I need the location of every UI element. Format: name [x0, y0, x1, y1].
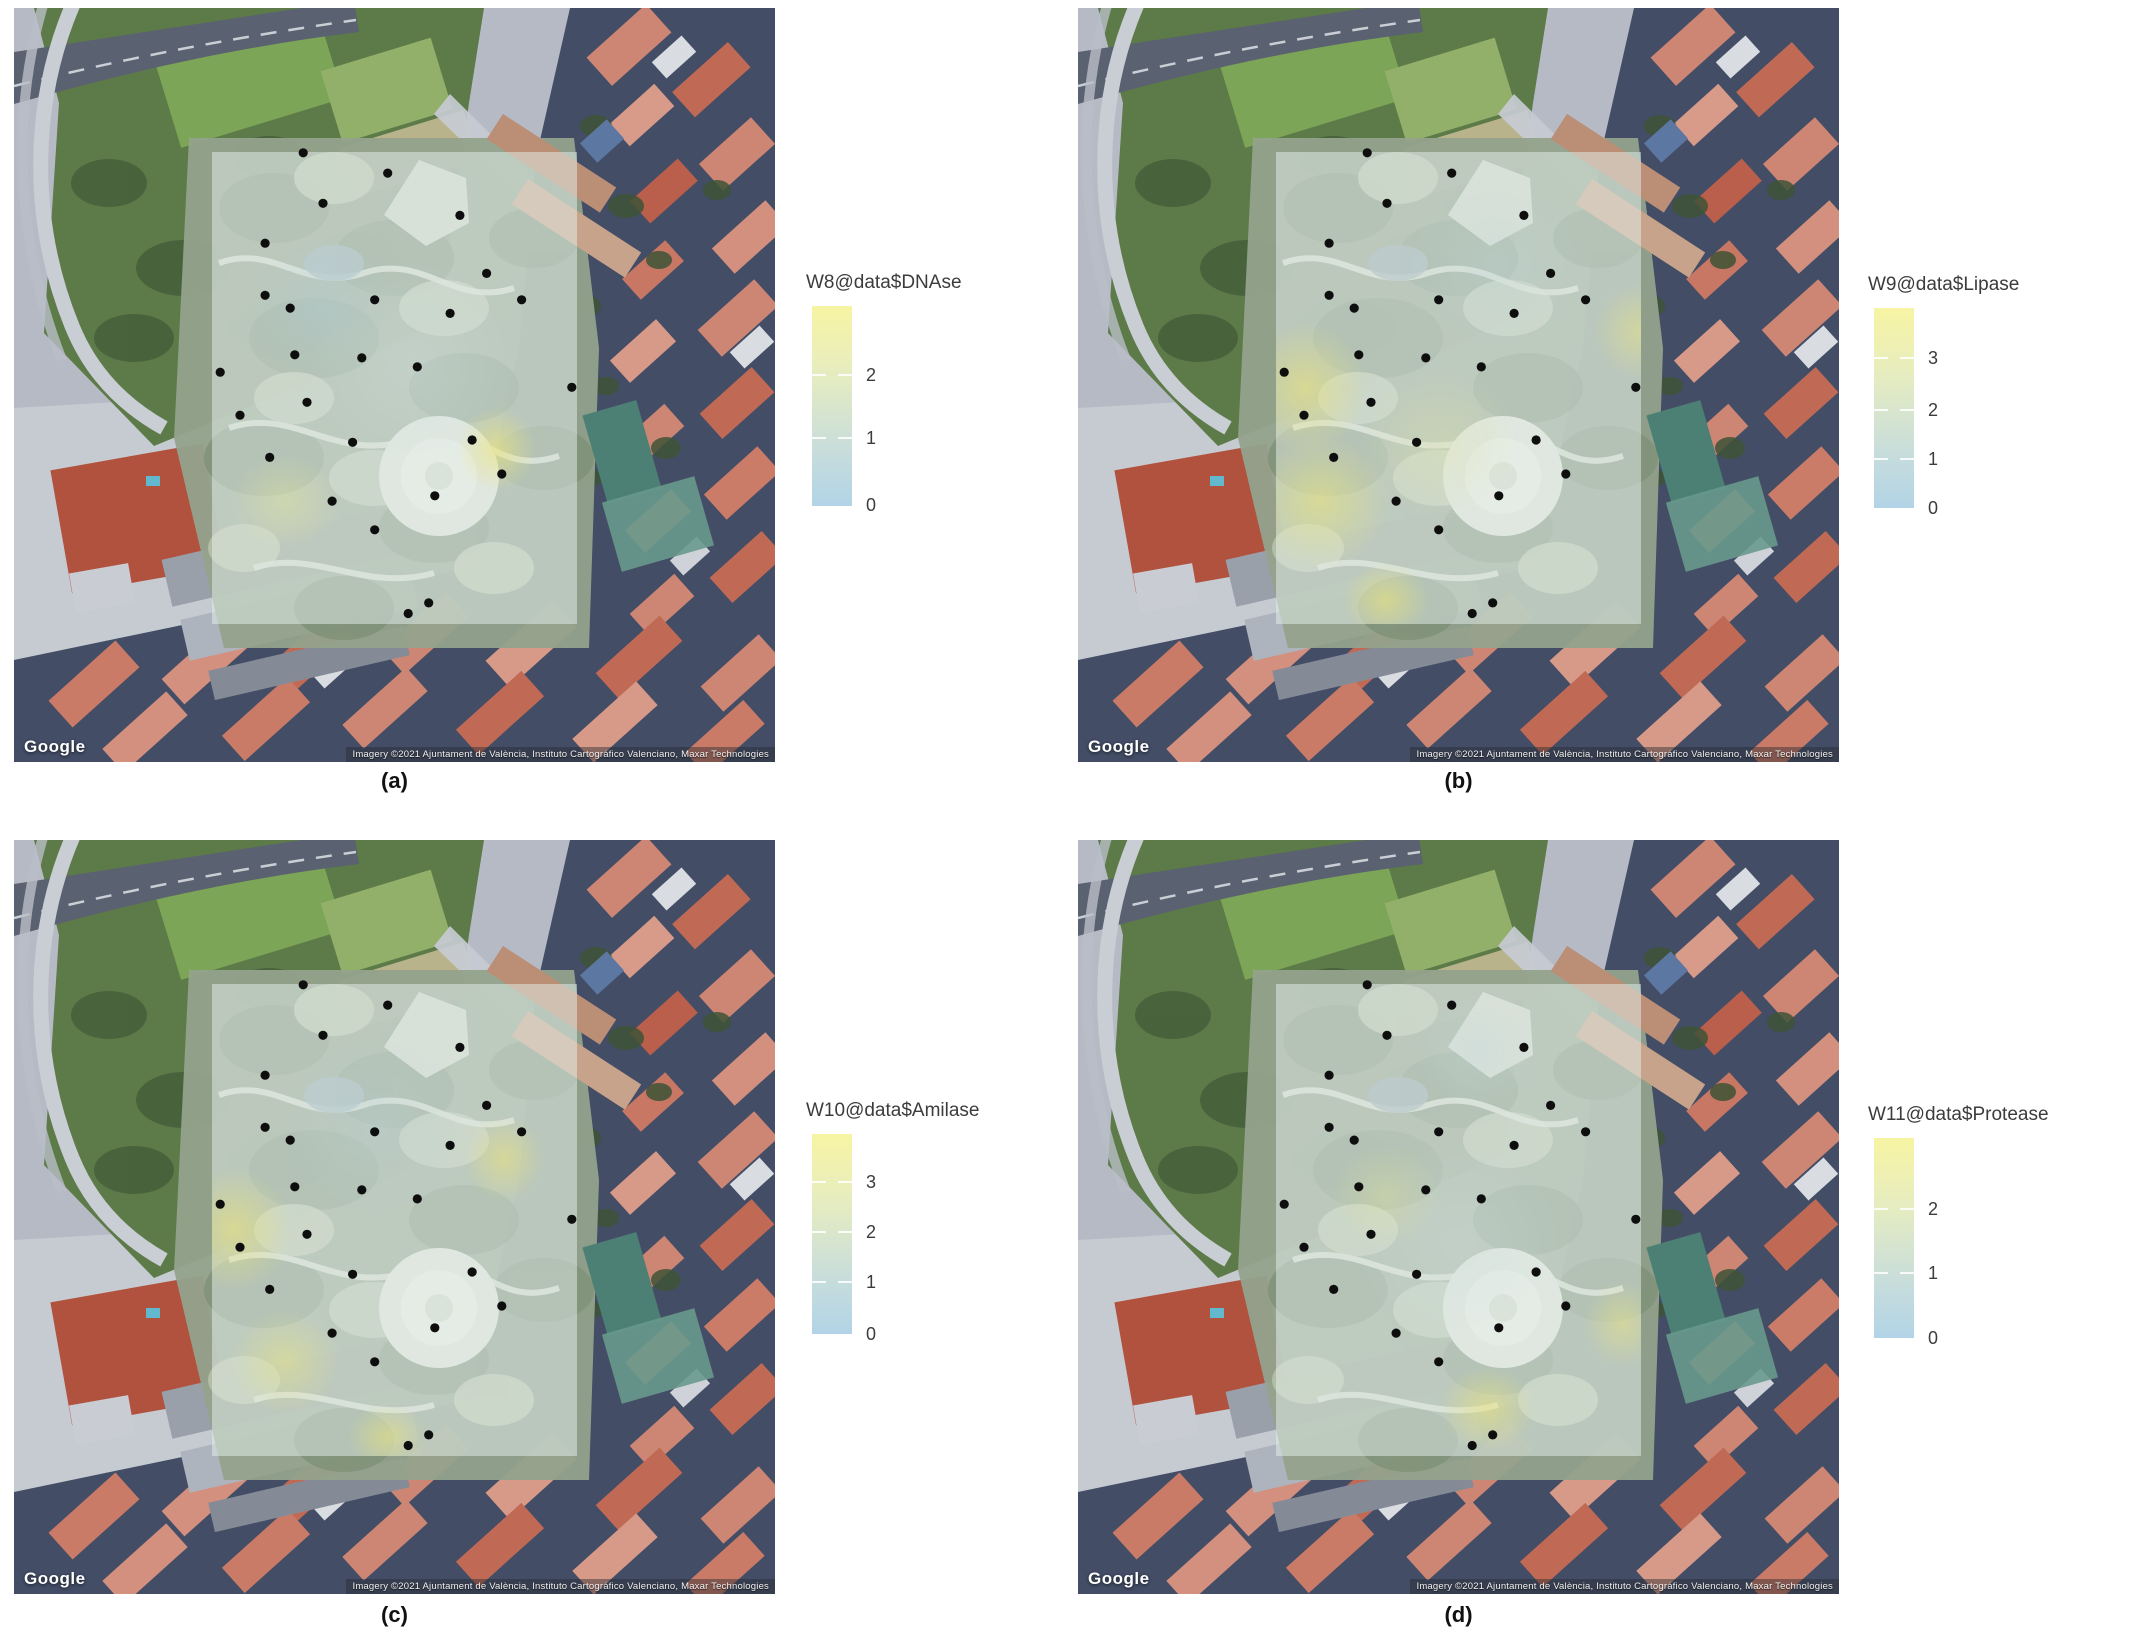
- sample-point: [1299, 1243, 1308, 1252]
- sample-point: [1280, 1200, 1289, 1209]
- sample-point: [446, 309, 455, 318]
- panel-label-d: (d): [1078, 1602, 1839, 1628]
- sample-point: [299, 148, 308, 157]
- sample-point: [430, 1323, 439, 1332]
- sample-point: [1325, 291, 1334, 300]
- satellite-map-b: Google Imagery ©2021 Ajuntament de Valèn…: [1078, 8, 1839, 762]
- map-attribution: Imagery ©2021 Ajuntament de València, In…: [1410, 1576, 1839, 1594]
- sample-point: [1325, 1071, 1334, 1080]
- sample-point: [1412, 438, 1421, 447]
- sample-point: [455, 211, 464, 220]
- sample-point: [1299, 411, 1308, 420]
- sample-point: [404, 1441, 413, 1450]
- sample-point: [1546, 269, 1555, 278]
- legend-b: W9@data$Lipase 3210: [1868, 274, 2130, 534]
- legend-tick-label: 2: [866, 364, 876, 386]
- sample-point: [1581, 295, 1590, 304]
- legend-tick-label: 0: [866, 1323, 876, 1345]
- legend-colorbar: [1874, 308, 1914, 508]
- sample-point: [497, 1301, 506, 1310]
- legend-ticks: 210: [1928, 1138, 1988, 1338]
- sample-point: [1477, 1194, 1486, 1203]
- sample-point: [1510, 309, 1519, 318]
- google-watermark: Google: [24, 737, 86, 757]
- sample-point: [1350, 1136, 1359, 1145]
- sample-point: [302, 1230, 311, 1239]
- sample-point: [1561, 469, 1570, 478]
- sample-point: [1421, 1185, 1430, 1194]
- sample-point: [1468, 1441, 1477, 1450]
- sample-point: [567, 1215, 576, 1224]
- sample-point: [299, 980, 308, 989]
- sample-point: [1532, 1267, 1541, 1276]
- sample-point: [348, 438, 357, 447]
- sample-point: [446, 1141, 455, 1150]
- sample-point: [1631, 383, 1640, 392]
- sample-point: [1363, 980, 1372, 989]
- sample-points-layer: [14, 8, 775, 762]
- legend-tick-label: 0: [866, 494, 876, 516]
- satellite-map-d: Google Imagery ©2021 Ajuntament de Valèn…: [1078, 840, 1839, 1594]
- sample-point: [1494, 1323, 1503, 1332]
- legend-c: W10@data$Amilase 3210: [806, 1100, 1068, 1360]
- sample-point: [517, 1127, 526, 1136]
- legend-title: W10@data$Amilase: [806, 1100, 979, 1122]
- sample-point: [424, 1430, 433, 1439]
- sample-point: [216, 1200, 225, 1209]
- sample-point: [235, 411, 244, 420]
- google-watermark: Google: [1088, 1569, 1150, 1589]
- legend-ticks: 210: [866, 306, 926, 506]
- sample-point: [1325, 239, 1334, 248]
- sample-point: [468, 435, 477, 444]
- sample-point: [1447, 169, 1456, 178]
- sample-point: [455, 1043, 464, 1052]
- sample-point: [1488, 1430, 1497, 1439]
- sample-point: [1412, 1270, 1421, 1279]
- sample-point: [261, 239, 270, 248]
- sample-point: [430, 491, 439, 500]
- legend-tick-label: 0: [1928, 1327, 1938, 1349]
- sample-point: [1468, 609, 1477, 618]
- sample-points-layer: [1078, 8, 1839, 762]
- sample-point: [370, 295, 379, 304]
- google-watermark: Google: [1088, 737, 1150, 757]
- legend-title: W11@data$Protease: [1868, 1104, 2049, 1126]
- sample-point: [1350, 304, 1359, 313]
- panel-label-a: (a): [14, 768, 775, 794]
- sample-point: [318, 1031, 327, 1040]
- sample-point: [413, 362, 422, 371]
- sample-point: [357, 353, 366, 362]
- sample-point: [357, 1185, 366, 1194]
- sample-point: [286, 1136, 295, 1145]
- sample-point: [216, 368, 225, 377]
- sample-point: [1329, 453, 1338, 462]
- sample-point: [1382, 199, 1391, 208]
- google-watermark: Google: [24, 1569, 86, 1589]
- legend-tick-label: 2: [1928, 399, 1938, 421]
- legend-tick-label: 2: [866, 1221, 876, 1243]
- sample-point: [413, 1194, 422, 1203]
- legend-title: W8@data$DNAse: [806, 272, 962, 294]
- sample-point: [261, 1123, 270, 1132]
- sample-point: [1581, 1127, 1590, 1136]
- sample-point: [348, 1270, 357, 1279]
- sample-point: [1631, 1215, 1640, 1224]
- sample-point: [1366, 1230, 1375, 1239]
- legend-title: W9@data$Lipase: [1868, 274, 2019, 296]
- legend-tick-label: 2: [1928, 1198, 1938, 1220]
- sample-points-layer: [1078, 840, 1839, 1594]
- sample-point: [370, 1357, 379, 1366]
- sample-point: [1494, 491, 1503, 500]
- sample-point: [1477, 362, 1486, 371]
- sample-point: [1421, 353, 1430, 362]
- legend-tick-label: 1: [1928, 1262, 1938, 1284]
- sample-point: [370, 525, 379, 534]
- sample-point: [370, 1127, 379, 1136]
- sample-point: [261, 1071, 270, 1080]
- sample-point: [1434, 1357, 1443, 1366]
- legend-tick-label: 0: [1928, 497, 1938, 519]
- sample-point: [404, 609, 413, 618]
- sample-point: [328, 497, 337, 506]
- four-panel-map-figure: Google Imagery ©2021 Ajuntament de Valèn…: [0, 0, 2131, 1645]
- sample-point: [290, 1182, 299, 1191]
- sample-point: [468, 1267, 477, 1276]
- sample-point: [290, 350, 299, 359]
- legend-colorbar: [812, 1134, 852, 1334]
- sample-point: [1546, 1101, 1555, 1110]
- legend-colorbar: [812, 306, 852, 506]
- sample-point: [1366, 398, 1375, 407]
- sample-point: [261, 291, 270, 300]
- sample-point: [1280, 368, 1289, 377]
- sample-point: [1354, 350, 1363, 359]
- sample-point: [497, 469, 506, 478]
- sample-point: [265, 453, 274, 462]
- legend-tick-label: 3: [866, 1171, 876, 1193]
- legend-tick-label: 3: [1928, 347, 1938, 369]
- sample-point: [1434, 295, 1443, 304]
- sample-point: [1447, 1001, 1456, 1010]
- sample-points-layer: [14, 840, 775, 1594]
- sample-point: [1382, 1031, 1391, 1040]
- sample-point: [383, 1001, 392, 1010]
- sample-point: [235, 1243, 244, 1252]
- legend-colorbar: [1874, 1138, 1914, 1338]
- sample-point: [302, 398, 311, 407]
- panel-label-c: (c): [14, 1602, 775, 1628]
- sample-point: [1354, 1182, 1363, 1191]
- sample-point: [1434, 525, 1443, 534]
- legend-a: W8@data$DNAse 210: [806, 272, 1068, 532]
- legend-ticks: 3210: [1928, 308, 1988, 508]
- sample-point: [517, 295, 526, 304]
- sample-point: [1325, 1123, 1334, 1132]
- sample-point: [1532, 435, 1541, 444]
- panel-label-b: (b): [1078, 768, 1839, 794]
- legend-tick-label: 1: [866, 427, 876, 449]
- sample-point: [1519, 211, 1528, 220]
- sample-point: [1363, 148, 1372, 157]
- map-attribution: Imagery ©2021 Ajuntament de València, In…: [346, 1576, 775, 1594]
- sample-point: [482, 1101, 491, 1110]
- legend-tick-label: 1: [1928, 448, 1938, 470]
- sample-point: [1510, 1141, 1519, 1150]
- map-attribution: Imagery ©2021 Ajuntament de València, In…: [346, 744, 775, 762]
- sample-point: [328, 1329, 337, 1338]
- sample-point: [482, 269, 491, 278]
- sample-point: [567, 383, 576, 392]
- legend-tick-label: 1: [866, 1271, 876, 1293]
- satellite-map-a: Google Imagery ©2021 Ajuntament de Valèn…: [14, 8, 775, 762]
- sample-point: [286, 304, 295, 313]
- sample-point: [1519, 1043, 1528, 1052]
- sample-point: [383, 169, 392, 178]
- legend-d: W11@data$Protease 210: [1868, 1104, 2130, 1364]
- sample-point: [1392, 497, 1401, 506]
- legend-ticks: 3210: [866, 1134, 926, 1334]
- sample-point: [1329, 1285, 1338, 1294]
- sample-point: [424, 598, 433, 607]
- sample-point: [1392, 1329, 1401, 1338]
- sample-point: [318, 199, 327, 208]
- satellite-map-c: Google Imagery ©2021 Ajuntament de Valèn…: [14, 840, 775, 1594]
- sample-point: [1561, 1301, 1570, 1310]
- sample-point: [1434, 1127, 1443, 1136]
- sample-point: [1488, 598, 1497, 607]
- map-attribution: Imagery ©2021 Ajuntament de València, In…: [1410, 744, 1839, 762]
- sample-point: [265, 1285, 274, 1294]
